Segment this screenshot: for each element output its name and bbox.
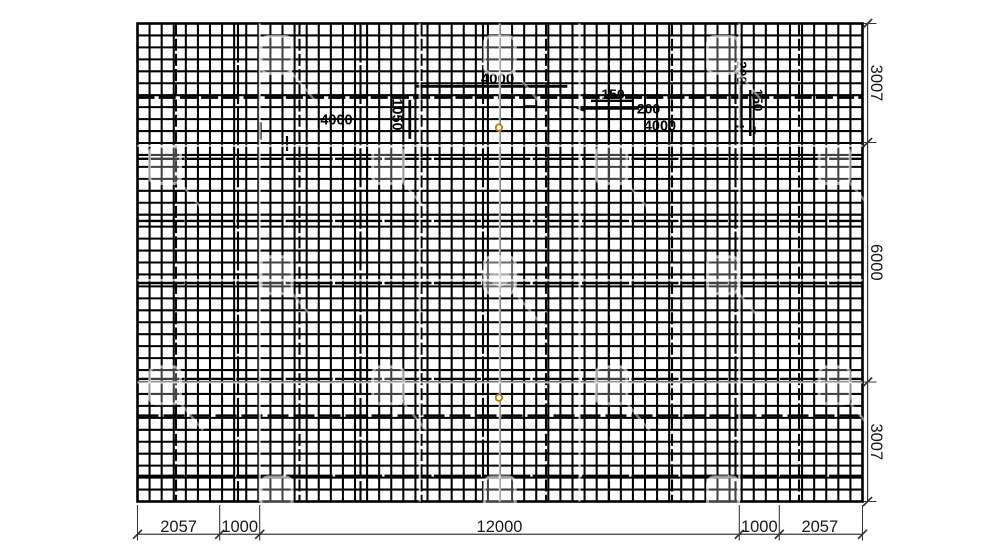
svg-text:1050: 1050 <box>389 98 405 130</box>
svg-text:4000: 4000 <box>644 119 676 135</box>
svg-text:2057: 2057 <box>160 518 197 536</box>
svg-text:6000: 6000 <box>867 244 885 281</box>
svg-text:150: 150 <box>750 89 765 112</box>
svg-text:2057: 2057 <box>801 518 838 536</box>
svg-text:12000: 12000 <box>477 518 523 536</box>
svg-text:3007: 3007 <box>867 65 885 102</box>
svg-text:150: 150 <box>601 86 625 102</box>
svg-text:3007: 3007 <box>867 423 885 460</box>
svg-text:1000: 1000 <box>741 518 778 536</box>
svg-text:4000: 4000 <box>320 113 352 129</box>
svg-text:1000: 1000 <box>221 518 258 536</box>
svg-text:200: 200 <box>637 101 661 117</box>
